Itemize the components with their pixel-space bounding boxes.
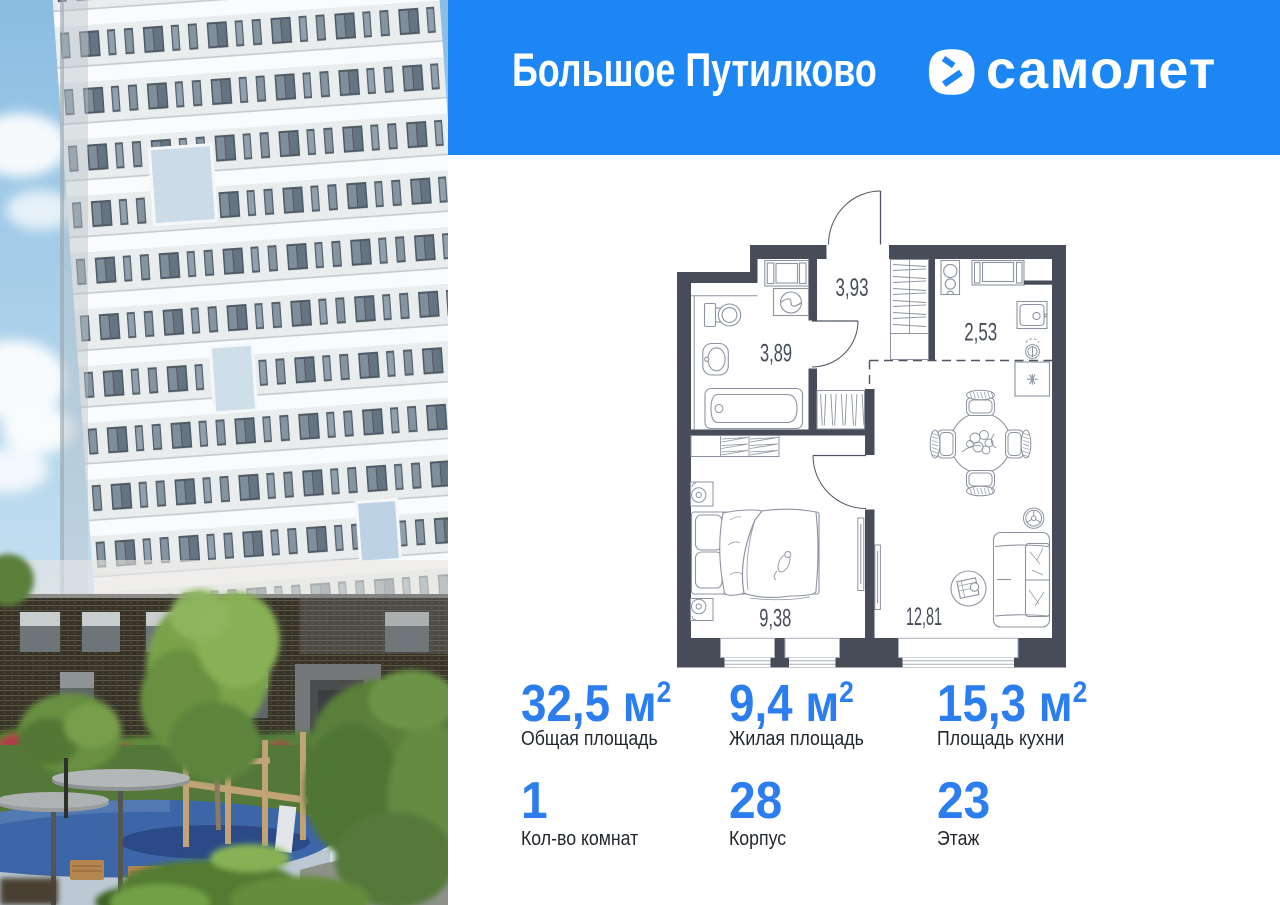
- svg-text:9,38: 9,38: [759, 605, 791, 633]
- svg-text:3,89: 3,89: [760, 340, 792, 368]
- svg-text:12,81: 12,81: [906, 603, 942, 631]
- svg-text:3,93: 3,93: [836, 274, 869, 302]
- svg-text:2,53: 2,53: [964, 319, 997, 347]
